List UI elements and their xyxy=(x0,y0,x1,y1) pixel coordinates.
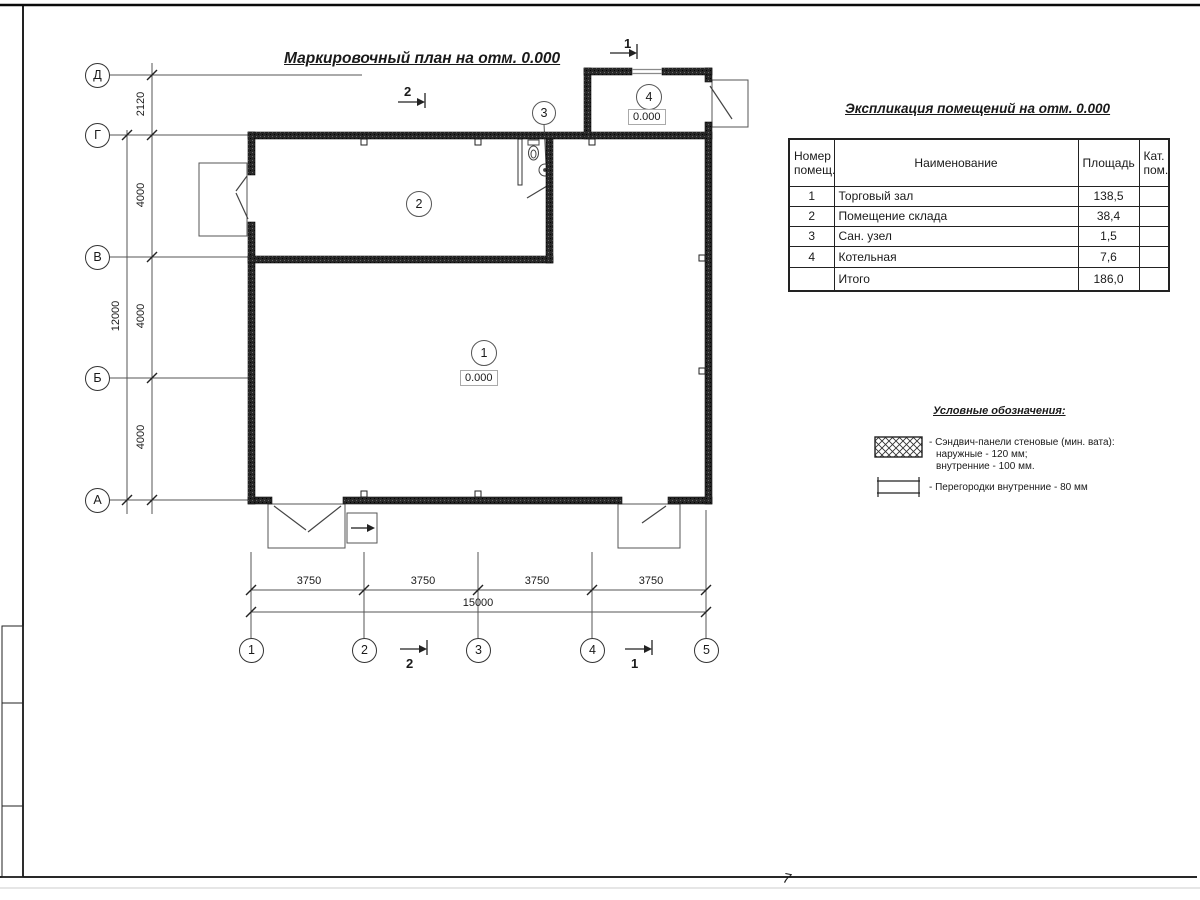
cell-cat xyxy=(1139,206,1169,226)
dim-4000-a: 4000 xyxy=(135,173,147,217)
col-header-name: Наименование xyxy=(834,139,1078,186)
axis-row-a: А xyxy=(85,488,110,513)
dim-2120: 2120 xyxy=(135,82,147,126)
dim-4000-c: 4000 xyxy=(135,415,147,459)
table-title: Экспликация помещений на отм. 0.000 xyxy=(845,101,1110,116)
dim-4000-b: 4000 xyxy=(135,294,147,338)
cell-cat xyxy=(1139,186,1169,206)
axis-row-v: В xyxy=(85,245,110,270)
porches xyxy=(199,80,748,548)
legend-item1-line3: внутренние - 100 мм. xyxy=(936,461,1035,472)
legend-partition-icon xyxy=(877,477,920,497)
section-label-2-top: 2 xyxy=(404,84,411,99)
section-label-2-bottom: 2 xyxy=(406,656,413,671)
cell-area: 138,5 xyxy=(1078,186,1139,206)
section-label-1-top: 1 xyxy=(624,36,631,51)
axis-lines xyxy=(109,63,706,638)
room3-callout: 3 xyxy=(532,101,556,125)
dim-15000: 15000 xyxy=(456,597,500,609)
cell-name: Котельная xyxy=(834,246,1078,267)
section-label-1-bottom: 1 xyxy=(631,656,638,671)
axis-col-3: 3 xyxy=(466,638,491,663)
door-leaves xyxy=(236,86,732,532)
plan-title: Маркировочный план на отм. 0.000 xyxy=(284,50,560,68)
cell-name: Торговый зал xyxy=(834,186,1078,206)
dimension-ticks xyxy=(122,70,711,617)
room2-callout: 2 xyxy=(406,191,432,217)
table-row: 4 Котельная 7,6 xyxy=(789,246,1169,267)
dim-3750-d: 3750 xyxy=(629,575,673,587)
cell-area: 38,4 xyxy=(1078,206,1139,226)
legend-item1-line1: - Сэндвич-панели стеновые (мин. вата): xyxy=(929,437,1115,448)
axis-col-5: 5 xyxy=(694,638,719,663)
axis-col-2: 2 xyxy=(352,638,377,663)
cell-cat xyxy=(1139,226,1169,246)
room4-callout: 4 xyxy=(636,84,662,110)
axis-row-d: Д xyxy=(85,63,110,88)
legend-item2-line1: - Перегородки внутренние - 80 мм xyxy=(929,482,1088,493)
entry-arrow-icon xyxy=(351,524,375,532)
cell-cat xyxy=(1139,267,1169,291)
cell-name: Сан. узел xyxy=(834,226,1078,246)
table-row-total: Итого 186,0 xyxy=(789,267,1169,291)
toilet-icon xyxy=(528,140,539,160)
col-header-cat: Кат. пом. xyxy=(1139,139,1169,186)
legend-item1-line2: наружные - 120 мм; xyxy=(936,449,1027,460)
axis-row-b: Б xyxy=(85,366,110,391)
drawing-sheet: Маркировочный план на отм. 0.000 Д Г В Б… xyxy=(0,0,1200,900)
cell-num: 2 xyxy=(789,206,834,226)
axis-row-g: Г xyxy=(85,123,110,148)
cell-area: 7,6 xyxy=(1078,246,1139,267)
room4-elevation: 0.000 xyxy=(628,109,666,125)
wc-partition xyxy=(518,139,522,185)
room1-callout: 1 xyxy=(471,340,497,366)
axis-col-1: 1 xyxy=(239,638,264,663)
room-schedule-table: Номер помещ. Наименование Площадь Кат. п… xyxy=(788,138,1170,292)
col-header-number: Номер помещ. xyxy=(789,139,834,186)
cell-cat xyxy=(1139,246,1169,267)
cell-name: Помещение склада xyxy=(834,206,1078,226)
cell-area: 186,0 xyxy=(1078,267,1139,291)
cell-name: Итого xyxy=(834,267,1078,291)
col-header-area: Площадь xyxy=(1078,139,1139,186)
cell-num: 3 xyxy=(789,226,834,246)
table-row: 2 Помещение склада 38,4 xyxy=(789,206,1169,226)
legend-title: Условные обозначения: xyxy=(933,405,1066,417)
table-row: 1 Торговый зал 138,5 xyxy=(789,186,1169,206)
cell-num: 4 xyxy=(789,246,834,267)
dim-3750-a: 3750 xyxy=(287,575,331,587)
cell-num: 1 xyxy=(789,186,834,206)
table-row: 3 Сан. узел 1,5 xyxy=(789,226,1169,246)
dim-3750-b: 3750 xyxy=(401,575,445,587)
legend-sandwich-panel-icon xyxy=(875,437,922,457)
walls xyxy=(248,68,712,504)
cell-area: 1,5 xyxy=(1078,226,1139,246)
room1-elevation: 0.000 xyxy=(460,370,498,386)
window-icon xyxy=(632,70,662,74)
dim-3750-c: 3750 xyxy=(515,575,559,587)
dim-12000: 12000 xyxy=(110,294,122,338)
axis-col-4: 4 xyxy=(580,638,605,663)
cell-num xyxy=(789,267,834,291)
